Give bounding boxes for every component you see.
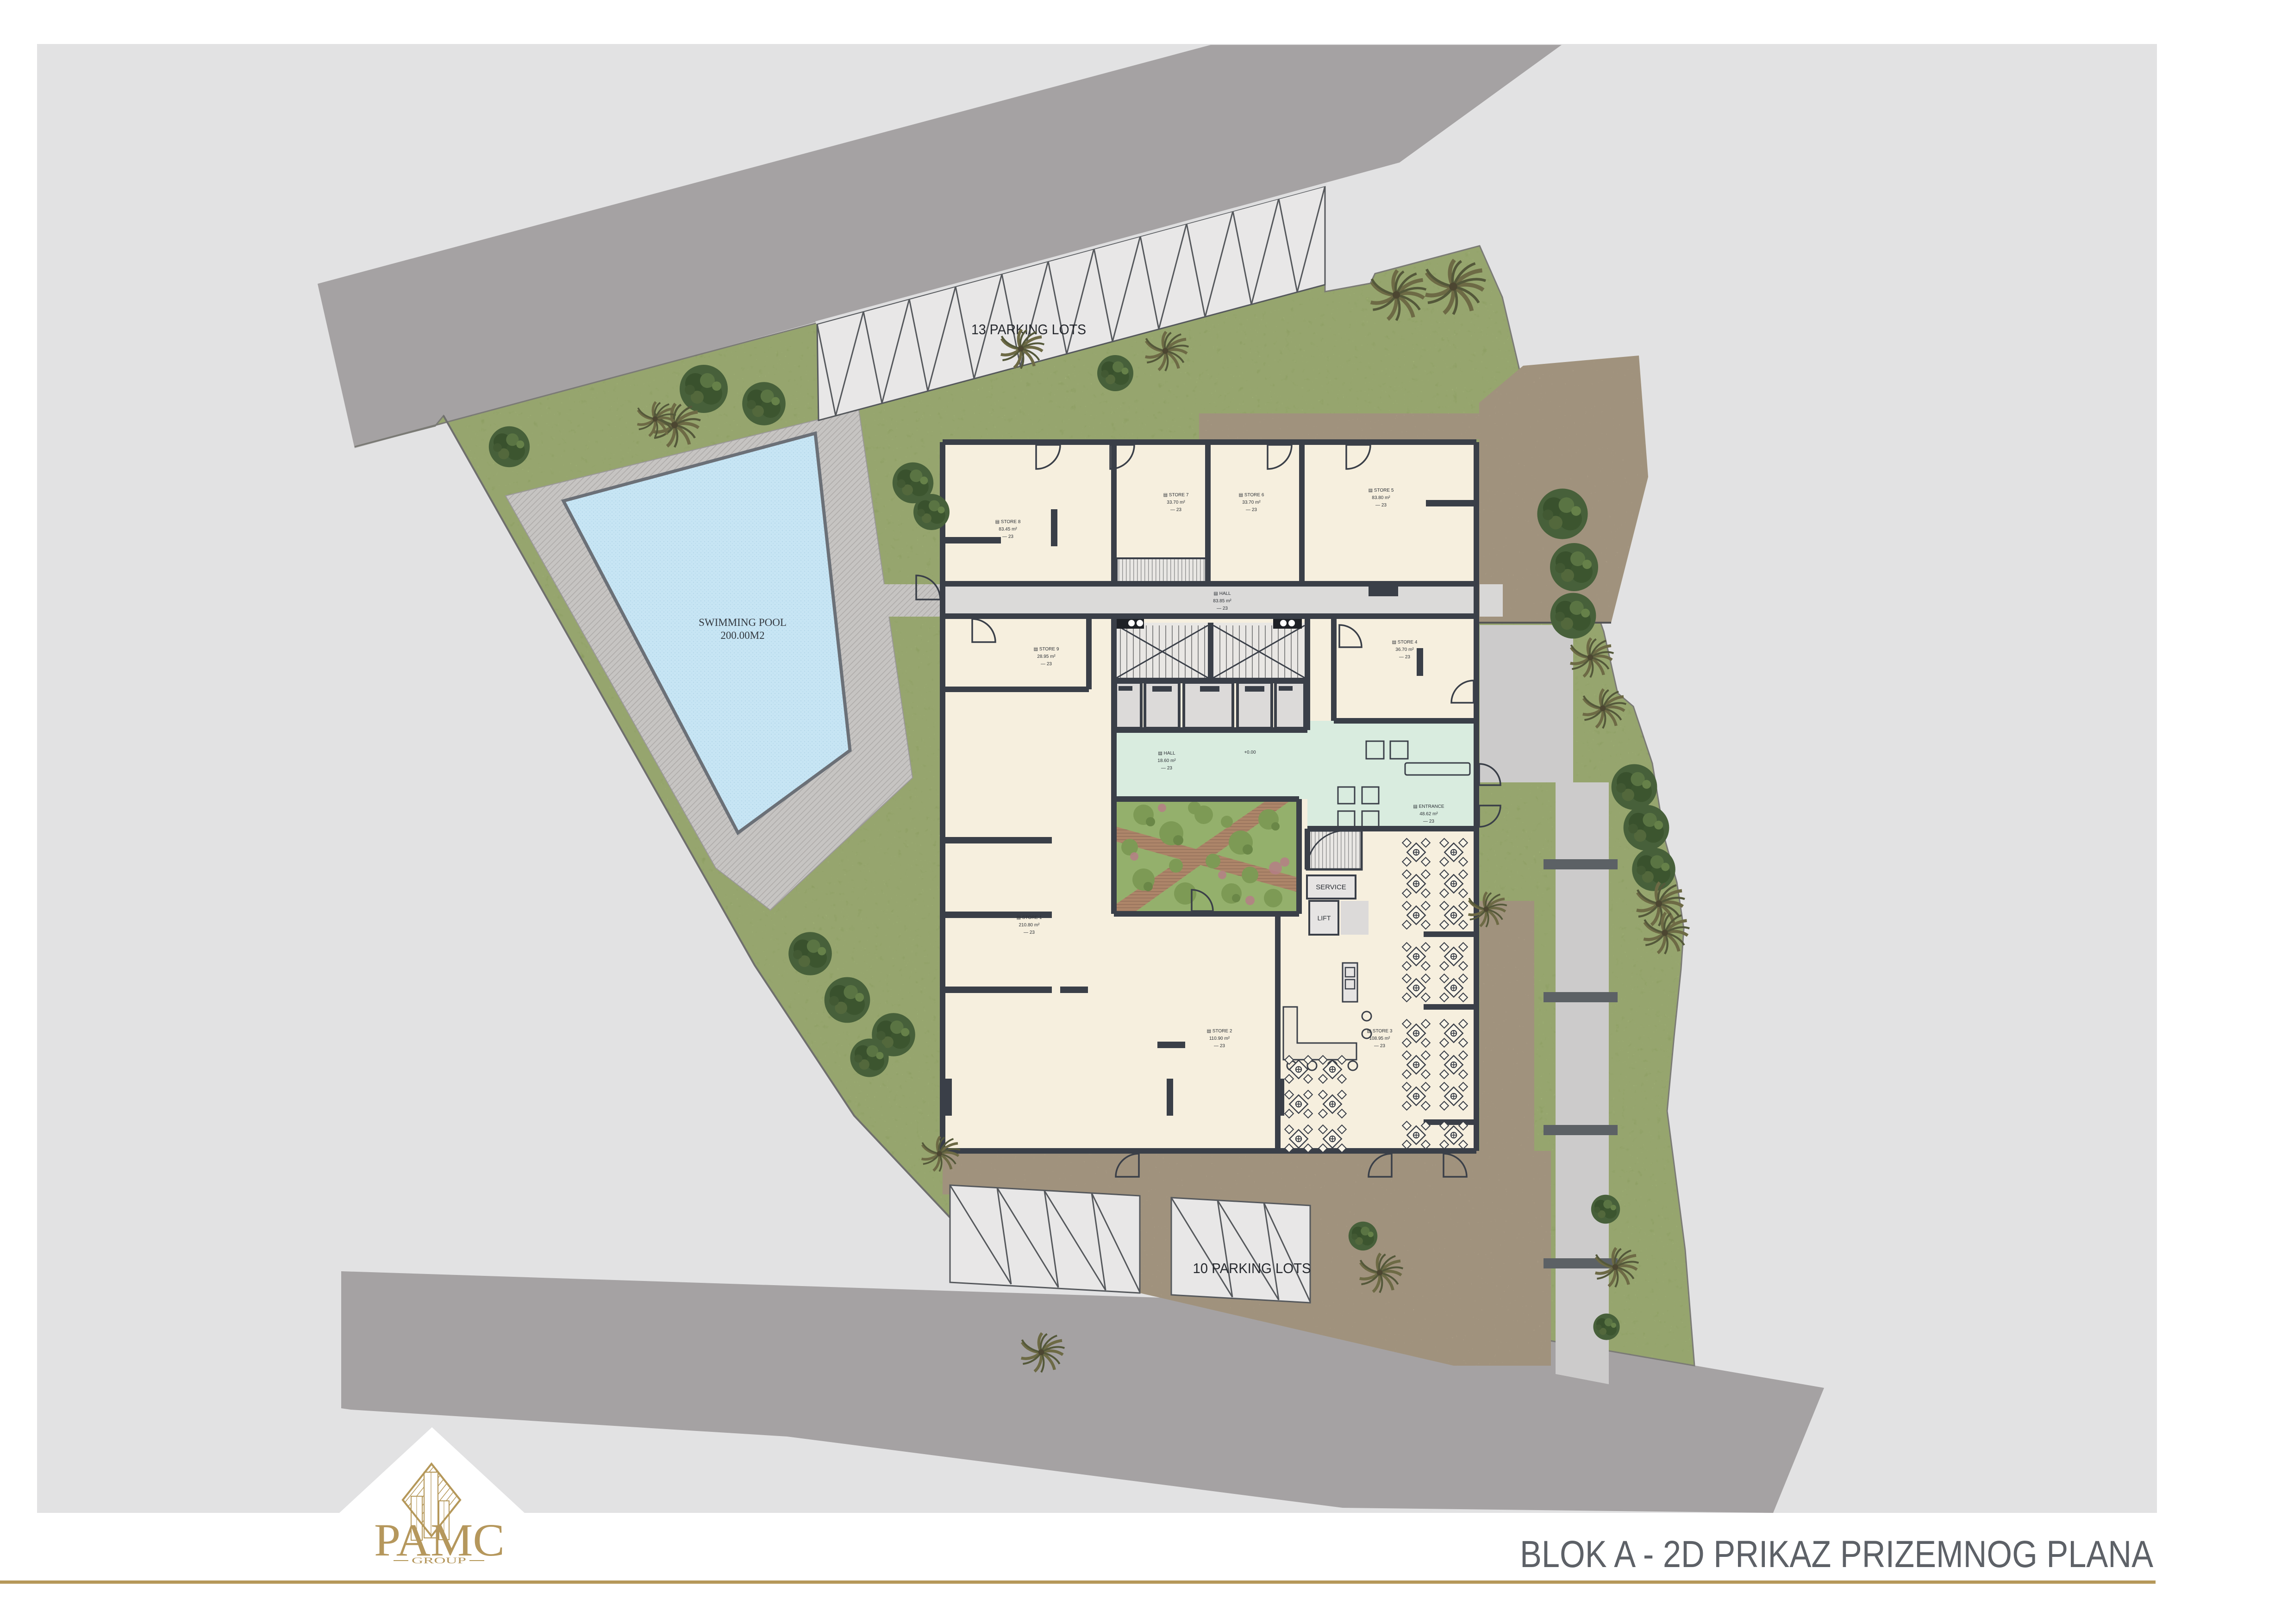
svg-text:▤ STORE 5: ▤ STORE 5 xyxy=(1369,488,1394,493)
svg-text:— 23: — 23 xyxy=(1246,507,1257,512)
svg-text:▤ STORE 7: ▤ STORE 7 xyxy=(1163,493,1189,498)
svg-text:10 PARKING LOTS: 10 PARKING LOTS xyxy=(1193,1260,1311,1276)
svg-text:▤ STORE 8: ▤ STORE 8 xyxy=(995,519,1021,525)
svg-text:110.90 m²: 110.90 m² xyxy=(1209,1036,1230,1041)
svg-text:— 23: — 23 xyxy=(1170,507,1181,512)
svg-text:▤ ENTRANCE: ▤ ENTRANCE xyxy=(1413,804,1444,809)
svg-text:▤ STORE 2: ▤ STORE 2 xyxy=(1207,1029,1232,1034)
svg-text:— 23: — 23 xyxy=(1024,930,1035,935)
svg-text:— 23: — 23 xyxy=(1423,819,1434,824)
svg-text:— 23: — 23 xyxy=(1002,534,1013,539)
svg-text:GROUP: GROUP xyxy=(412,1556,466,1566)
svg-text:LIFT: LIFT xyxy=(1318,914,1331,922)
svg-text:13 PARKING LOTS: 13 PARKING LOTS xyxy=(971,321,1086,337)
svg-text:200.00M2: 200.00M2 xyxy=(720,630,764,641)
svg-text:SERVICE: SERVICE xyxy=(1316,883,1346,891)
svg-text:33.70 m²: 33.70 m² xyxy=(1167,500,1185,505)
svg-text:▤ STORE 9: ▤ STORE 9 xyxy=(1034,647,1059,652)
svg-text:▤ STORE 4: ▤ STORE 4 xyxy=(1392,640,1418,645)
svg-text:210.80 m²: 210.80 m² xyxy=(1019,923,1040,928)
svg-text:▤ HALL: ▤ HALL xyxy=(1213,591,1231,596)
svg-text:▤ STORE 3: ▤ STORE 3 xyxy=(1367,1029,1393,1034)
svg-text:▤ HALL: ▤ HALL xyxy=(1158,751,1175,756)
svg-text:— 23: — 23 xyxy=(1217,606,1228,611)
svg-text:BLOK A - 2D PRIKAZ PRIZEMNOG P: BLOK A - 2D PRIKAZ PRIZEMNOG PLANA xyxy=(1520,1533,2153,1575)
svg-text:— 23: — 23 xyxy=(1214,1043,1225,1049)
svg-text:33.70 m²: 33.70 m² xyxy=(1242,500,1261,505)
svg-text:83.80 m²: 83.80 m² xyxy=(1372,495,1390,500)
svg-text:83.45 m²: 83.45 m² xyxy=(999,527,1017,532)
svg-text:— 23: — 23 xyxy=(1399,655,1410,660)
svg-text:48.62 m²: 48.62 m² xyxy=(1419,812,1438,817)
svg-text:▤ STORE 6: ▤ STORE 6 xyxy=(1239,493,1264,498)
svg-text:83.85 m²: 83.85 m² xyxy=(1213,599,1231,604)
svg-text:— 23: — 23 xyxy=(1374,1043,1385,1049)
svg-text:— 23: — 23 xyxy=(1375,503,1387,508)
svg-text:108.95 m²: 108.95 m² xyxy=(1369,1036,1390,1041)
svg-text:— 23: — 23 xyxy=(1041,662,1052,667)
svg-text:28.95 m²: 28.95 m² xyxy=(1037,654,1056,659)
svg-text:▤ STORE 1: ▤ STORE 1 xyxy=(1017,915,1042,920)
svg-text:+0.00: +0.00 xyxy=(1244,750,1256,755)
svg-text:36.70 m²: 36.70 m² xyxy=(1395,647,1414,652)
svg-text:— 23: — 23 xyxy=(1161,766,1172,771)
svg-text:SWIMMING POOL: SWIMMING POOL xyxy=(699,617,787,628)
svg-text:18.60 m²: 18.60 m² xyxy=(1157,758,1176,763)
